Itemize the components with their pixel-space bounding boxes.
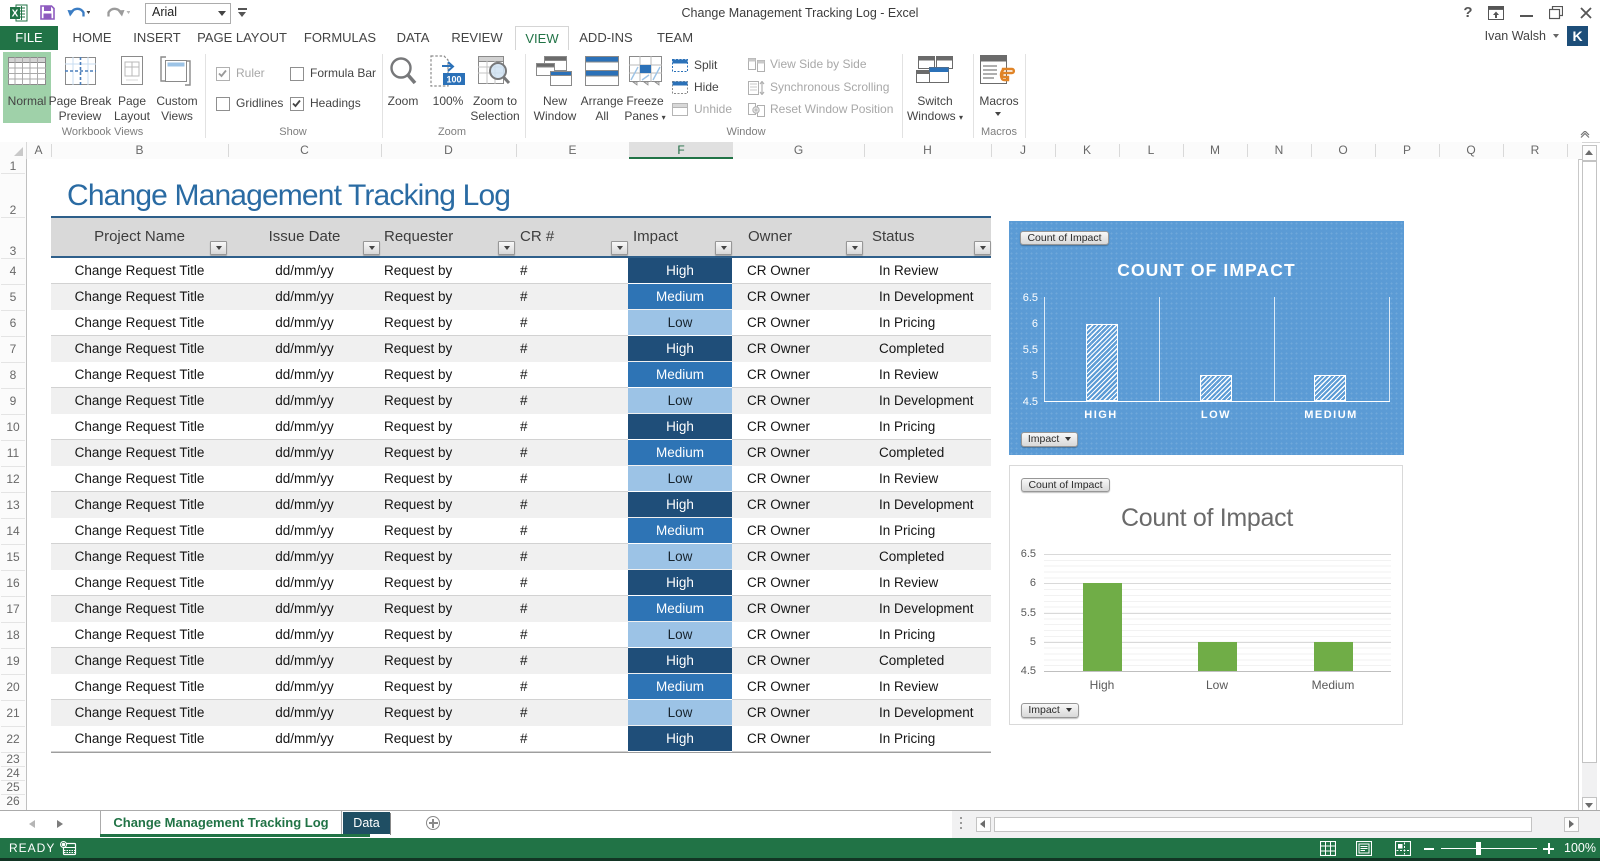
svg-text:X: X (12, 9, 19, 20)
svg-text:100: 100 (446, 75, 461, 85)
